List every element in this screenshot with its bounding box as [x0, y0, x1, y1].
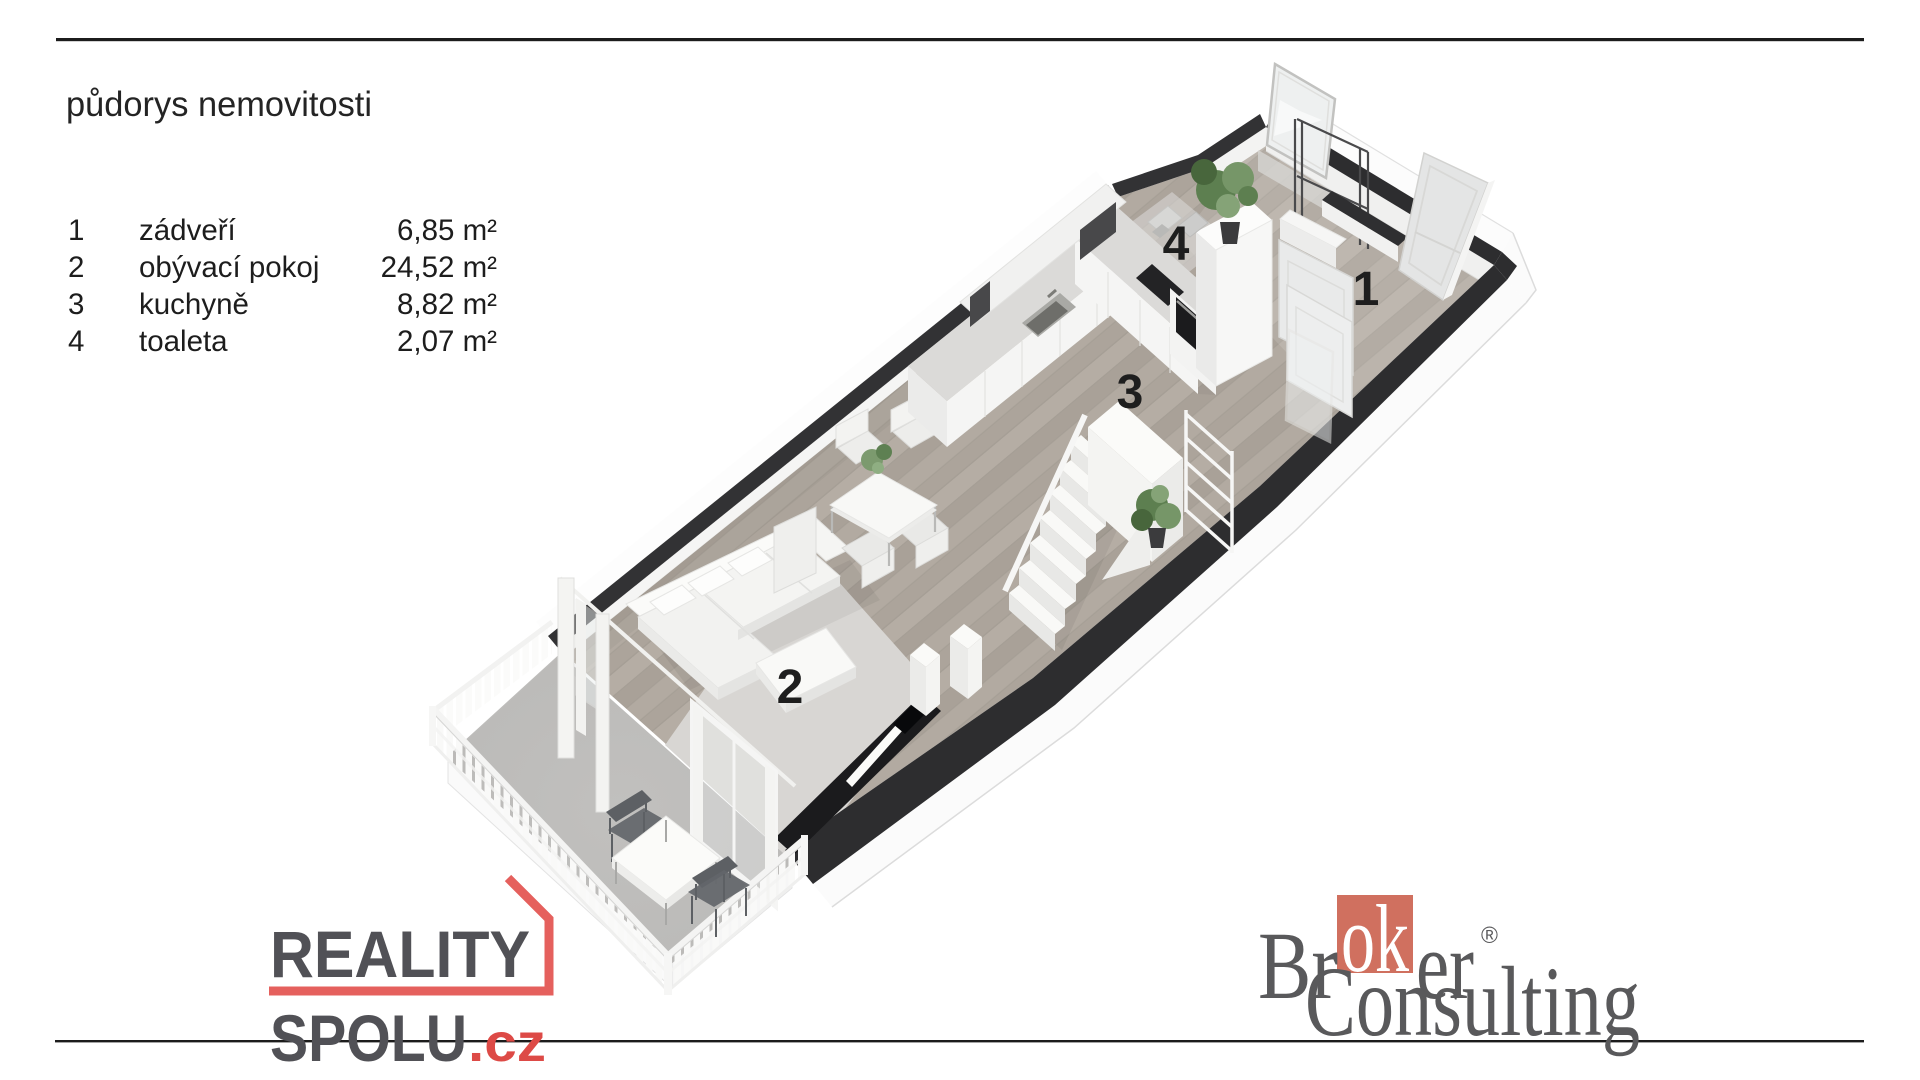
svg-text:®: ® [1481, 922, 1498, 948]
svg-text:6,85 m²: 6,85 m² [397, 214, 497, 247]
svg-text:8,82 m²: 8,82 m² [397, 288, 497, 321]
svg-text:1: 1 [1353, 263, 1380, 316]
svg-text:4: 4 [68, 325, 84, 358]
svg-text:24,52 m²: 24,52 m² [381, 251, 498, 284]
svg-text:zádveří: zádveří [139, 214, 237, 247]
svg-text:SPOLU: SPOLU [270, 1001, 467, 1075]
svg-text:4: 4 [1163, 218, 1190, 271]
svg-text:REALITY: REALITY [270, 917, 530, 991]
svg-text:2: 2 [777, 661, 804, 714]
svg-text:obývací pokoj: obývací pokoj [139, 251, 319, 284]
svg-text:Consulting: Consulting [1305, 946, 1640, 1057]
svg-text:3: 3 [1117, 366, 1144, 419]
svg-text:.cz: .cz [468, 1013, 546, 1073]
svg-text:2: 2 [68, 251, 84, 284]
svg-text:půdorys nemovitosti: půdorys nemovitosti [66, 85, 372, 124]
svg-text:1: 1 [68, 214, 84, 247]
svg-text:2,07 m²: 2,07 m² [397, 325, 497, 358]
svg-text:kuchyně: kuchyně [139, 288, 249, 321]
svg-text:3: 3 [68, 288, 84, 321]
svg-text:toaleta: toaleta [139, 325, 228, 358]
